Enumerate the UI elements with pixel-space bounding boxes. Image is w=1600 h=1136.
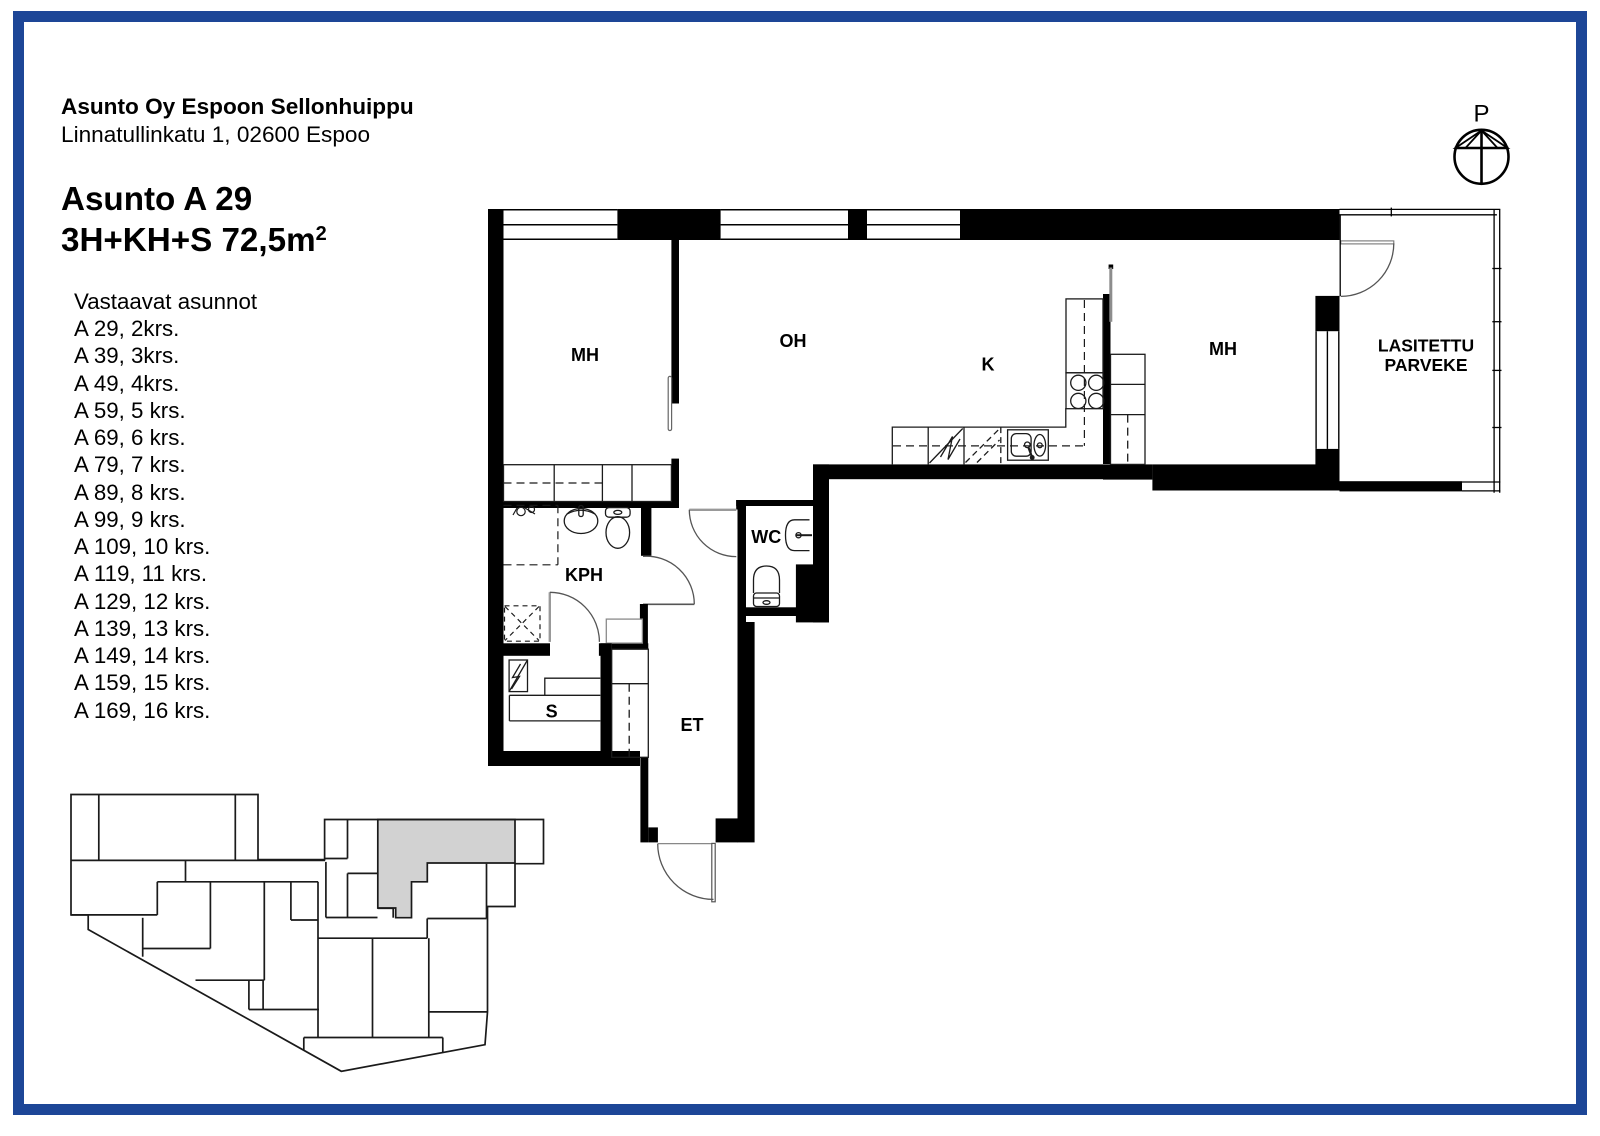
svg-text:A 119, 11 krs.: A 119, 11 krs.: [74, 561, 207, 586]
svg-text:OH: OH: [780, 331, 807, 351]
svg-text:A 29, 2krs.: A 29, 2krs.: [74, 316, 179, 341]
svg-text:Linnatullinkatu 1, 02600 Espoo: Linnatullinkatu 1, 02600 Espoo: [61, 122, 370, 147]
svg-text:A 39, 3krs.: A 39, 3krs.: [74, 343, 179, 368]
svg-text:Asunto Oy Espoon Sellonhuippu: Asunto Oy Espoon Sellonhuippu: [61, 94, 414, 119]
svg-text:A 59, 5 krs.: A 59, 5 krs.: [74, 398, 186, 423]
svg-text:MH: MH: [571, 345, 599, 365]
svg-text:A 129, 12 krs.: A 129, 12 krs.: [74, 589, 210, 614]
svg-text:ET: ET: [680, 715, 703, 735]
svg-text:KPH: KPH: [565, 565, 603, 585]
svg-text:A 69, 6 krs.: A 69, 6 krs.: [74, 425, 186, 450]
svg-text:LASITETTU: LASITETTU: [1378, 336, 1474, 356]
svg-text:Vastaavat asunnot: Vastaavat asunnot: [74, 289, 258, 314]
svg-text:A 149, 14 krs.: A 149, 14 krs.: [74, 643, 210, 668]
svg-text:P: P: [1473, 101, 1489, 128]
svg-text:A 79, 7 krs.: A 79, 7 krs.: [74, 452, 186, 477]
svg-text:A 109, 10 krs.: A 109, 10 krs.: [74, 534, 210, 559]
svg-text:A 99, 9 krs.: A 99, 9 krs.: [74, 507, 186, 532]
svg-text:A 139, 13 krs.: A 139, 13 krs.: [74, 616, 210, 641]
svg-text:A 159, 15 krs.: A 159, 15 krs.: [74, 670, 210, 695]
svg-text:K: K: [982, 355, 995, 375]
svg-text:PARVEKE: PARVEKE: [1385, 355, 1468, 375]
svg-text:S: S: [546, 702, 558, 722]
svg-text:A 89, 8 krs.: A 89, 8 krs.: [74, 480, 186, 505]
svg-text:Asunto A 29: Asunto A 29: [61, 181, 252, 218]
svg-text:WC: WC: [751, 527, 781, 547]
svg-text:3H+KH+S 72,5m2: 3H+KH+S 72,5m2: [61, 222, 327, 259]
svg-text:A 169, 16 krs.: A 169, 16 krs.: [74, 698, 210, 723]
svg-text:MH: MH: [1209, 339, 1237, 359]
svg-text:A 49, 4krs.: A 49, 4krs.: [74, 371, 179, 396]
